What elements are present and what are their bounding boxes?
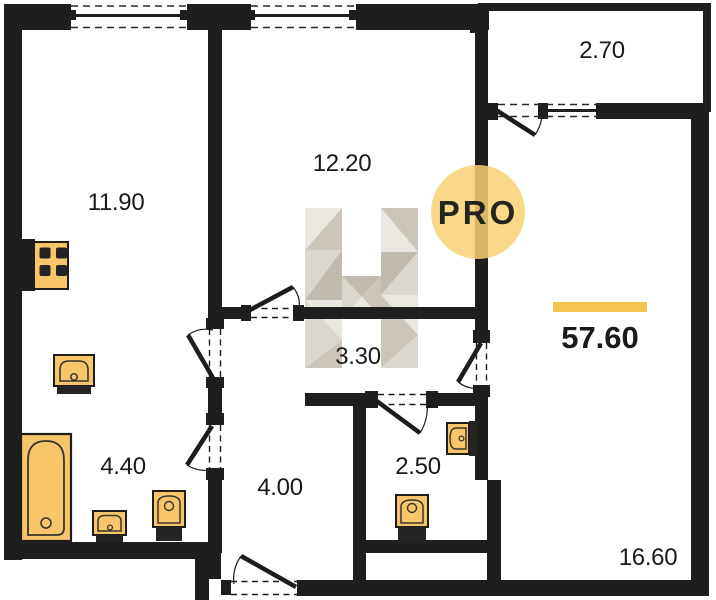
window-sill: [251, 14, 356, 17]
kitchen-sink-icon: [54, 355, 94, 394]
bathtub-drain: [41, 518, 51, 528]
washbasin-icon: [93, 511, 126, 542]
watermark-pro-badge: PRO: [431, 165, 525, 259]
toilet-hole: [165, 502, 174, 511]
sink-drain: [71, 374, 77, 380]
wall-corridor-top-a: [220, 307, 243, 319]
room-area-label: 4.00: [257, 474, 303, 501]
wall-top-a: [4, 4, 71, 30]
wall-wc-bottom: [366, 540, 488, 553]
wall-corner-block: [195, 553, 221, 579]
total-area-accent-bar: [553, 302, 647, 312]
wall-wc-left: [353, 406, 366, 596]
sink-base: [57, 386, 91, 394]
window-sill: [546, 109, 598, 112]
total-area-label: 57.60: [561, 320, 639, 355]
burner: [40, 265, 51, 276]
wall-top-b: [187, 4, 251, 30]
floor-plan: 11.90 12.20 2.70 3.30 4.40 4.00 2.50 16.…: [0, 0, 716, 600]
toilet-icon: [153, 491, 185, 541]
wall-corridor-top-b: [303, 307, 476, 319]
window-cap: [67, 10, 76, 20]
bathtub-icon: [21, 434, 71, 541]
wall-sink-drain: [459, 436, 464, 441]
window-cap: [180, 10, 188, 20]
wall-right: [691, 103, 709, 596]
toilet-cistern: [156, 527, 182, 541]
toilet-cistern: [398, 527, 426, 543]
room-area-label: 12.20: [313, 150, 372, 177]
wall-corridor-bottom-a: [305, 393, 367, 406]
wall-top-c: [356, 4, 489, 30]
window-sill: [71, 14, 187, 17]
door-jamb: [241, 305, 251, 321]
stove-icon: [22, 239, 68, 291]
wall-inner-vertical-lower: [208, 468, 222, 553]
wall-sink-mount: [469, 421, 477, 456]
wall-left: [4, 4, 22, 560]
wall-inner-vertical-upper: [208, 30, 222, 329]
window-cap: [247, 10, 255, 20]
door-jamb: [206, 318, 224, 329]
wall-balcony-bottom: [600, 103, 691, 119]
burner: [56, 265, 67, 276]
wall-bathroom-bottom: [4, 542, 221, 559]
door-jamb: [473, 385, 490, 397]
washbasin-drain: [108, 525, 113, 530]
burner: [56, 248, 67, 259]
total-area: 57.60: [553, 302, 647, 355]
entrance-jamb-left: [221, 580, 231, 595]
wall-balcony-right: [703, 3, 711, 112]
room-area-label: 16.60: [619, 544, 678, 571]
wall-step: [195, 578, 209, 600]
burner: [40, 248, 51, 259]
floor-plan-canvas: 11.90 12.20 2.70 3.30 4.40 4.00 2.50 16.…: [0, 0, 716, 600]
toilet-icon: [396, 495, 428, 543]
window-cap: [349, 10, 357, 20]
door-jamb: [293, 305, 304, 321]
wall-sink-icon: [447, 421, 477, 456]
pro-badge-text: PRO: [438, 194, 519, 231]
wall-balcony-top: [478, 3, 711, 11]
room-area-label: 4.40: [100, 453, 146, 480]
door-jamb: [206, 413, 224, 425]
toilet-hole: [408, 504, 417, 513]
washbasin-base: [96, 535, 123, 542]
room-area-label: 2.70: [579, 37, 625, 64]
door-jamb: [473, 330, 490, 343]
room-area-label: 11.90: [88, 189, 145, 216]
wall-inner-right-lower: [487, 480, 501, 596]
room-area-label: 3.30: [335, 343, 381, 370]
room-area-label: 2.50: [395, 453, 441, 480]
